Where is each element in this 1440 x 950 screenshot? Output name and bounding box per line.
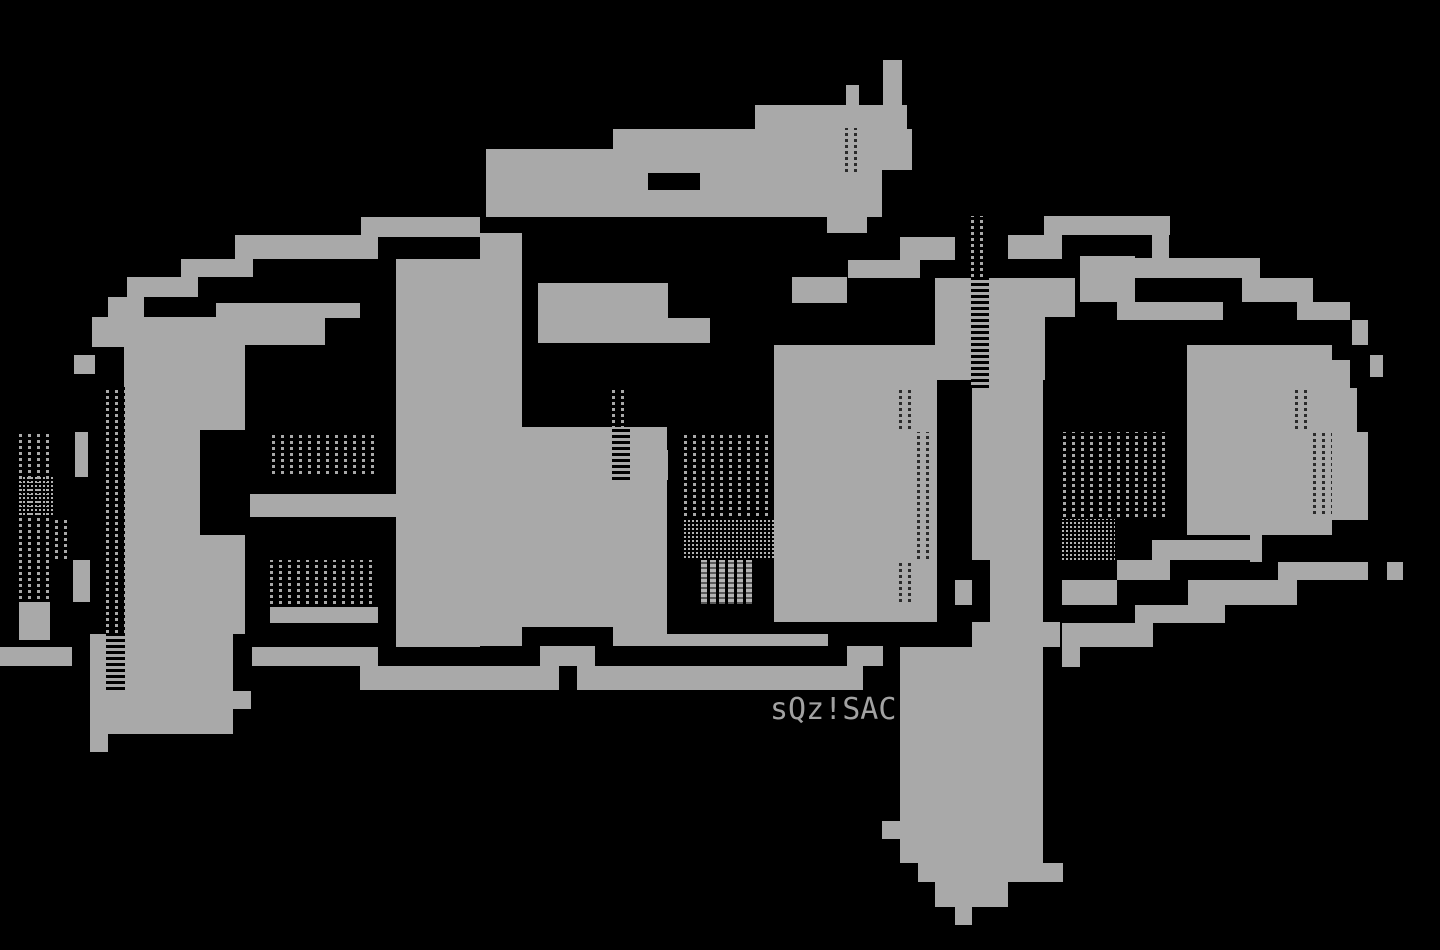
art-block-a-edge-1 — [92, 317, 110, 347]
art-block-five-step — [827, 217, 867, 233]
art-block-bottom-bar-top-3 — [540, 646, 595, 666]
art-block-tex-wall-3 — [899, 560, 917, 605]
art-block-p-bowl-bot-5 — [1387, 562, 1403, 580]
art-block-p-top-1 — [1044, 216, 1170, 235]
art-block-p-outer-1 — [1352, 320, 1368, 345]
art-block-p-top-4 — [1080, 256, 1135, 302]
art-block-p-top-7 — [1242, 278, 1313, 302]
art-block-p-top-5 — [1135, 258, 1260, 278]
art-block-bottom-bar-main — [360, 666, 863, 690]
art-block-five-wall-up-3 — [900, 237, 955, 260]
art-block-a-top-bar-1 — [361, 217, 480, 237]
art-block-p-outer-2 — [1370, 355, 1383, 377]
art-block-tex-wall-1 — [899, 390, 917, 432]
art-block-p-top-6 — [1117, 302, 1223, 320]
art-block-p-bowl-bot-6 — [1188, 580, 1297, 605]
art-block-bottom-bar-top-1 — [396, 634, 480, 647]
art-block-a-fill-right — [396, 317, 480, 647]
art-block-a-foot-left — [19, 602, 50, 640]
artist-signature: sQz!SAC — [770, 693, 896, 727]
art-block-a-top-bar-6 — [216, 303, 360, 318]
art-block-five-midband — [538, 283, 668, 343]
art-block-a-top-bar-4 — [127, 277, 198, 297]
art-block-a-band-mid — [250, 494, 396, 517]
art-block-a-shoulder — [110, 317, 325, 345]
art-block-a-right-upper — [396, 259, 480, 317]
art-block-five-step-2 — [630, 450, 668, 480]
art-block-a-edge-4 — [73, 560, 90, 602]
art-block-bottom-bar-top-2 — [613, 634, 828, 646]
art-block-five-wall-up-1 — [792, 277, 847, 303]
art-block-a-edge-3 — [75, 432, 88, 477]
art-block-p-stem-4 — [990, 560, 1043, 622]
art-block-p-descender-notch — [882, 821, 902, 839]
art-block-p-stem-5 — [972, 622, 1060, 647]
art-block-p-bowl-bot-4 — [1278, 562, 1368, 580]
art-block-p-stem-top — [935, 278, 1075, 317]
art-block-a-top-bar-3 — [181, 259, 253, 277]
art-block-p-descender-1 — [900, 647, 1043, 821]
art-block-p-bowl-bot-8 — [1062, 623, 1153, 647]
ansi-art-canvas: sQz!SAC — [0, 0, 1440, 950]
art-block-bottom-bar-left — [0, 647, 72, 666]
art-block-tex-left-3 — [106, 387, 125, 690]
art-block-bottom-bar-top-5 — [480, 634, 522, 646]
art-block-p-bowl-bot-3 — [1062, 580, 1117, 605]
art-block-tex-p-big — [1063, 432, 1170, 520]
art-block-notch-band — [648, 173, 700, 190]
art-block-tex-a-lower — [270, 560, 377, 607]
art-block-p-bowl-bot-1 — [1152, 540, 1258, 560]
art-block-tex-p-checker — [1062, 519, 1115, 562]
art-block-tex-bowl-r1 — [1295, 388, 1313, 432]
art-block-tex-five-col — [612, 387, 630, 480]
art-block-tex-left-1 — [19, 433, 54, 602]
art-block-five-flag-1 — [755, 105, 907, 129]
art-block-gap-piece — [955, 580, 972, 605]
art-block-five-tip — [883, 60, 902, 85]
art-block-p-bowl-bot-7 — [1135, 605, 1225, 623]
art-block-p-bowl-right-2 — [1332, 388, 1357, 432]
art-block-tex-left-2 — [55, 517, 69, 562]
art-block-tex-wall-2 — [917, 432, 935, 562]
art-block-a-fill-left-1 — [124, 345, 245, 430]
art-block-tex-five-big — [684, 432, 774, 519]
art-block-p-descender-3 — [918, 863, 1063, 882]
art-block-p-bowl-right-3 — [1332, 432, 1368, 520]
art-block-a-top-bar-2 — [235, 235, 378, 259]
art-block-a-bottom-step — [198, 691, 251, 709]
art-block-p-bowl-right-1 — [1332, 360, 1350, 388]
art-block-bottom-bar-mid — [252, 647, 378, 666]
art-block-a-edge-2 — [74, 355, 95, 374]
art-block-notch-flag — [859, 85, 883, 105]
art-block-notch-mass — [522, 627, 613, 646]
art-block-p-top-3 — [1152, 235, 1169, 259]
art-block-notch-bar — [559, 666, 577, 690]
art-block-bottom-bar-top-4 — [847, 646, 883, 666]
art-block-a-band-low — [270, 607, 378, 623]
art-block-five-wall-up-2 — [848, 260, 920, 278]
art-block-tex-p-stem — [971, 216, 989, 388]
art-block-p-top-8 — [1297, 302, 1350, 320]
art-block-tex-left-checker — [19, 477, 54, 517]
art-block-p-descender-2 — [900, 821, 1043, 863]
art-block-p-top-2 — [1008, 235, 1062, 259]
art-block-a-fill-left-2 — [124, 430, 200, 535]
art-block-p-stem-2 — [935, 317, 1045, 380]
art-block-tex-bowl-r2 — [1313, 432, 1332, 517]
art-block-five-midband-2 — [668, 318, 710, 343]
art-block-a-bottom-foot — [90, 734, 108, 752]
art-block-p-bowl-bot-2 — [1117, 560, 1170, 580]
art-block-p-stem-3 — [972, 380, 1043, 560]
art-block-p-bowl-foot — [1062, 647, 1080, 667]
art-block-tex-flag — [845, 128, 863, 175]
art-block-p-descender-4 — [935, 882, 1008, 907]
art-block-a-fill-left-3 — [124, 535, 245, 634]
art-block-p-bowl-fill-2 — [1187, 425, 1250, 535]
art-block-p-descender-5 — [955, 907, 972, 925]
art-block-tex-five-checker — [684, 519, 774, 560]
art-block-tex-a-upper — [272, 432, 377, 477]
art-block-tex-five-light — [701, 560, 755, 604]
